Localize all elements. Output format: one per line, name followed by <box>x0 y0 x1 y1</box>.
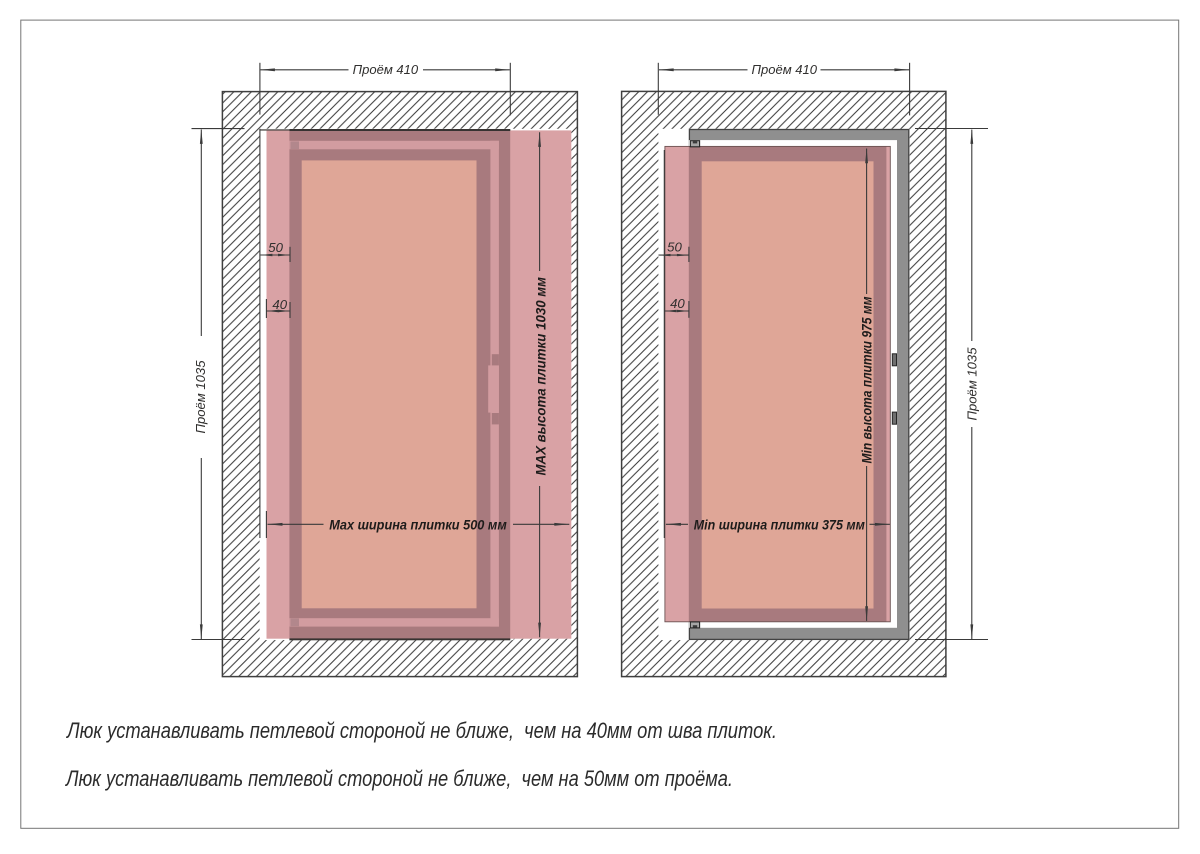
svg-text:Люк устанавливать петлевой сто: Люк устанавливать петлевой стороной не б… <box>65 718 777 743</box>
svg-text:Min высота плитки 975 мм: Min высота плитки 975 мм <box>859 297 874 464</box>
svg-text:Проём 410: Проём 410 <box>752 62 818 77</box>
svg-text:50: 50 <box>667 240 682 255</box>
svg-text:50: 50 <box>268 240 283 255</box>
svg-text:40: 40 <box>670 296 685 311</box>
svg-text:Max ширина плитки 500 мм: Max ширина плитки 500 мм <box>329 517 507 532</box>
svg-text:40: 40 <box>272 297 287 312</box>
svg-text:Min ширина плитки 375 мм: Min ширина плитки 375 мм <box>694 517 865 532</box>
svg-text:Проём 1035: Проём 1035 <box>965 347 980 421</box>
svg-text:Проём 410: Проём 410 <box>353 62 419 77</box>
svg-text:Люк устанавливать петлевой сто: Люк устанавливать петлевой стороной не б… <box>64 766 733 791</box>
svg-text:Проём 1035: Проём 1035 <box>193 360 208 434</box>
svg-text:MAX высота плитки 1030 мм: MAX высота плитки 1030 мм <box>533 277 548 475</box>
